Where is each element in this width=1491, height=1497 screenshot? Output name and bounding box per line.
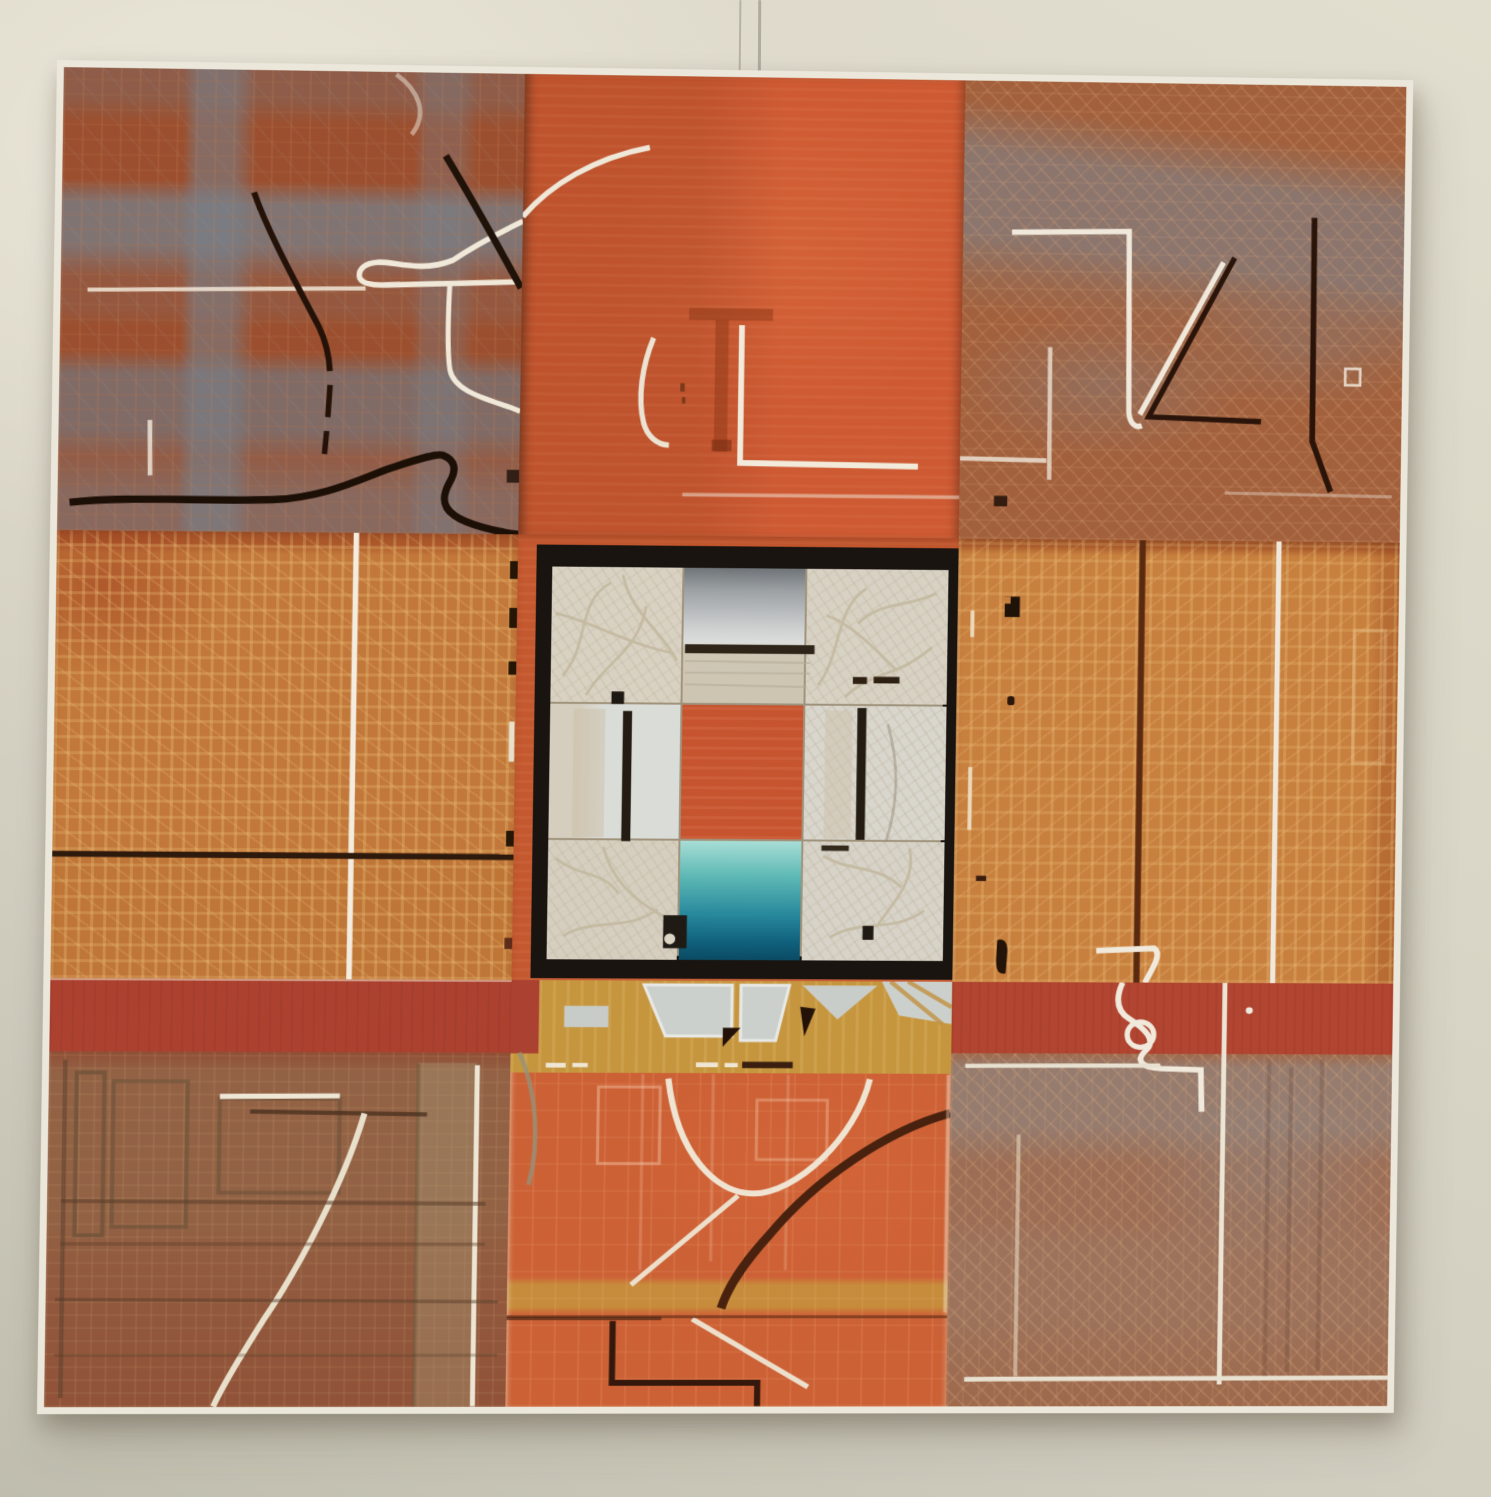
panel-middle-left	[50, 530, 518, 980]
panel-bottom-left-artwork	[44, 978, 512, 1407]
panel-middle-right-artwork	[952, 538, 1400, 983]
center-square-artwork	[546, 566, 944, 957]
center-inner-grid	[546, 566, 944, 957]
abstract-painting	[37, 60, 1413, 1414]
panel-top-left-artwork	[57, 67, 525, 534]
panel-middle-left-artwork	[50, 530, 518, 980]
panel-top-center-artwork	[518, 74, 965, 539]
center-black-square	[531, 544, 959, 980]
panel-bottom-center	[505, 980, 952, 1406]
panel-bottom-right	[946, 982, 1393, 1406]
panel-bottom-left	[44, 978, 512, 1407]
hanging-wire-left	[739, 0, 742, 80]
panel-top-center	[518, 74, 965, 539]
panel-top-right	[959, 80, 1407, 542]
panel-top-left	[57, 67, 525, 534]
gallery-wall	[0, 0, 1491, 1497]
panel-center	[512, 534, 959, 982]
panel-bottom-right-artwork	[946, 982, 1393, 1406]
panel-bottom-center-artwork	[505, 980, 952, 1406]
painting-grid	[44, 67, 1406, 1407]
panel-middle-right	[952, 538, 1400, 983]
panel-top-right-artwork	[959, 80, 1407, 542]
